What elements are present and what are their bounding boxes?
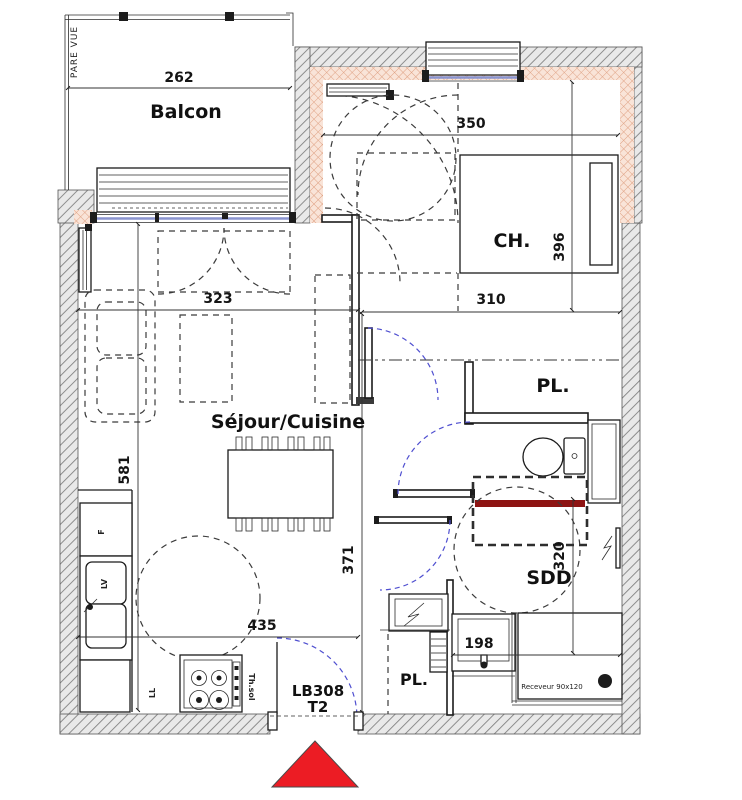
wc-zone-door: [365, 328, 438, 400]
dishwasher-label: LV: [100, 578, 109, 589]
balcony: PARE VUE Balcon 262: [65, 12, 293, 190]
svg-text:310: 310: [476, 292, 505, 308]
coffee-table: [180, 315, 232, 402]
svg-text:350: 350: [456, 116, 485, 132]
tall-cabinet-dashed: [315, 275, 350, 403]
shower-zone-dashed: [473, 477, 587, 545]
wc-door: [393, 422, 475, 498]
french-door-swing: [158, 228, 290, 294]
unit-type: T2: [308, 698, 329, 716]
radiator-living: [79, 224, 92, 292]
svg-text:198: 198: [464, 636, 493, 652]
dim-bedroom-width: 350: [323, 116, 618, 135]
svg-text:581: 581: [117, 455, 133, 484]
turning-circle-kitchen: [136, 536, 260, 660]
toilet: [523, 438, 585, 476]
dim-balcony-width: 262: [68, 70, 290, 88]
room-label-closet-bottom: PL.: [400, 670, 428, 689]
floor-plan-drawing: PARE VUE Balcon 262: [0, 0, 742, 800]
svg-text:435: 435: [247, 618, 276, 634]
room-label-closet-top: PL.: [536, 375, 569, 397]
shower-tray-label: Receveur 90x120: [521, 683, 582, 691]
fridge: [80, 503, 132, 556]
dim-living-width: 323: [78, 291, 358, 310]
shower-glass-panel: [588, 420, 620, 503]
washing-machine-label: LL: [148, 688, 157, 698]
svg-text:320: 320: [552, 541, 568, 570]
living-kitchen: Séjour/Cuisine F LV LL: [78, 224, 365, 712]
wardrobe-dashed: [357, 153, 455, 220]
svg-text:371: 371: [341, 545, 357, 574]
wall-outlet: [602, 528, 620, 568]
floor-thermostat-label: Th.sol: [247, 673, 256, 700]
shower-tray: Receveur 90x120: [512, 613, 622, 705]
bedroom: CH. 350 396: [323, 82, 618, 311]
dining-table: [228, 437, 333, 531]
kitchen-counter: F LV LL: [78, 490, 157, 712]
shower-room: SDD Receveur 90x120 320 198: [452, 420, 622, 705]
towel-radiator: [430, 632, 447, 672]
bedroom-door-swing: [325, 95, 458, 283]
accent-wall-red: [475, 500, 585, 507]
room-label-balcony: Balcon: [150, 101, 222, 123]
living-bay-window: [90, 168, 296, 294]
shower-room-door: [374, 516, 452, 590]
electrical-panel: [389, 594, 448, 631]
svg-text:396: 396: [552, 232, 568, 261]
turning-circle-bedroom: [330, 95, 456, 221]
cooktop: Th.sol: [180, 655, 256, 712]
privacy-screen-label: PARE VUE: [70, 26, 80, 78]
bed: [460, 155, 618, 273]
entrance-marker-triangle: [272, 741, 358, 787]
room-label-bedroom: CH.: [493, 230, 530, 252]
floor-plan-page: PARE VUE Balcon 262: [0, 0, 742, 800]
unit-label: LB308 T2: [292, 682, 344, 716]
svg-text:323: 323: [203, 291, 232, 307]
dim-corridor-width: 310: [362, 292, 620, 312]
washing-machine: [80, 660, 130, 712]
fridge-label: F: [97, 529, 106, 534]
kitchen-sink: [80, 556, 132, 660]
radiator-bedroom: [327, 84, 394, 100]
entry-closet: PL.: [380, 594, 450, 714]
room-label-living: Séjour/Cuisine: [211, 411, 365, 433]
svg-text:262: 262: [164, 70, 193, 86]
